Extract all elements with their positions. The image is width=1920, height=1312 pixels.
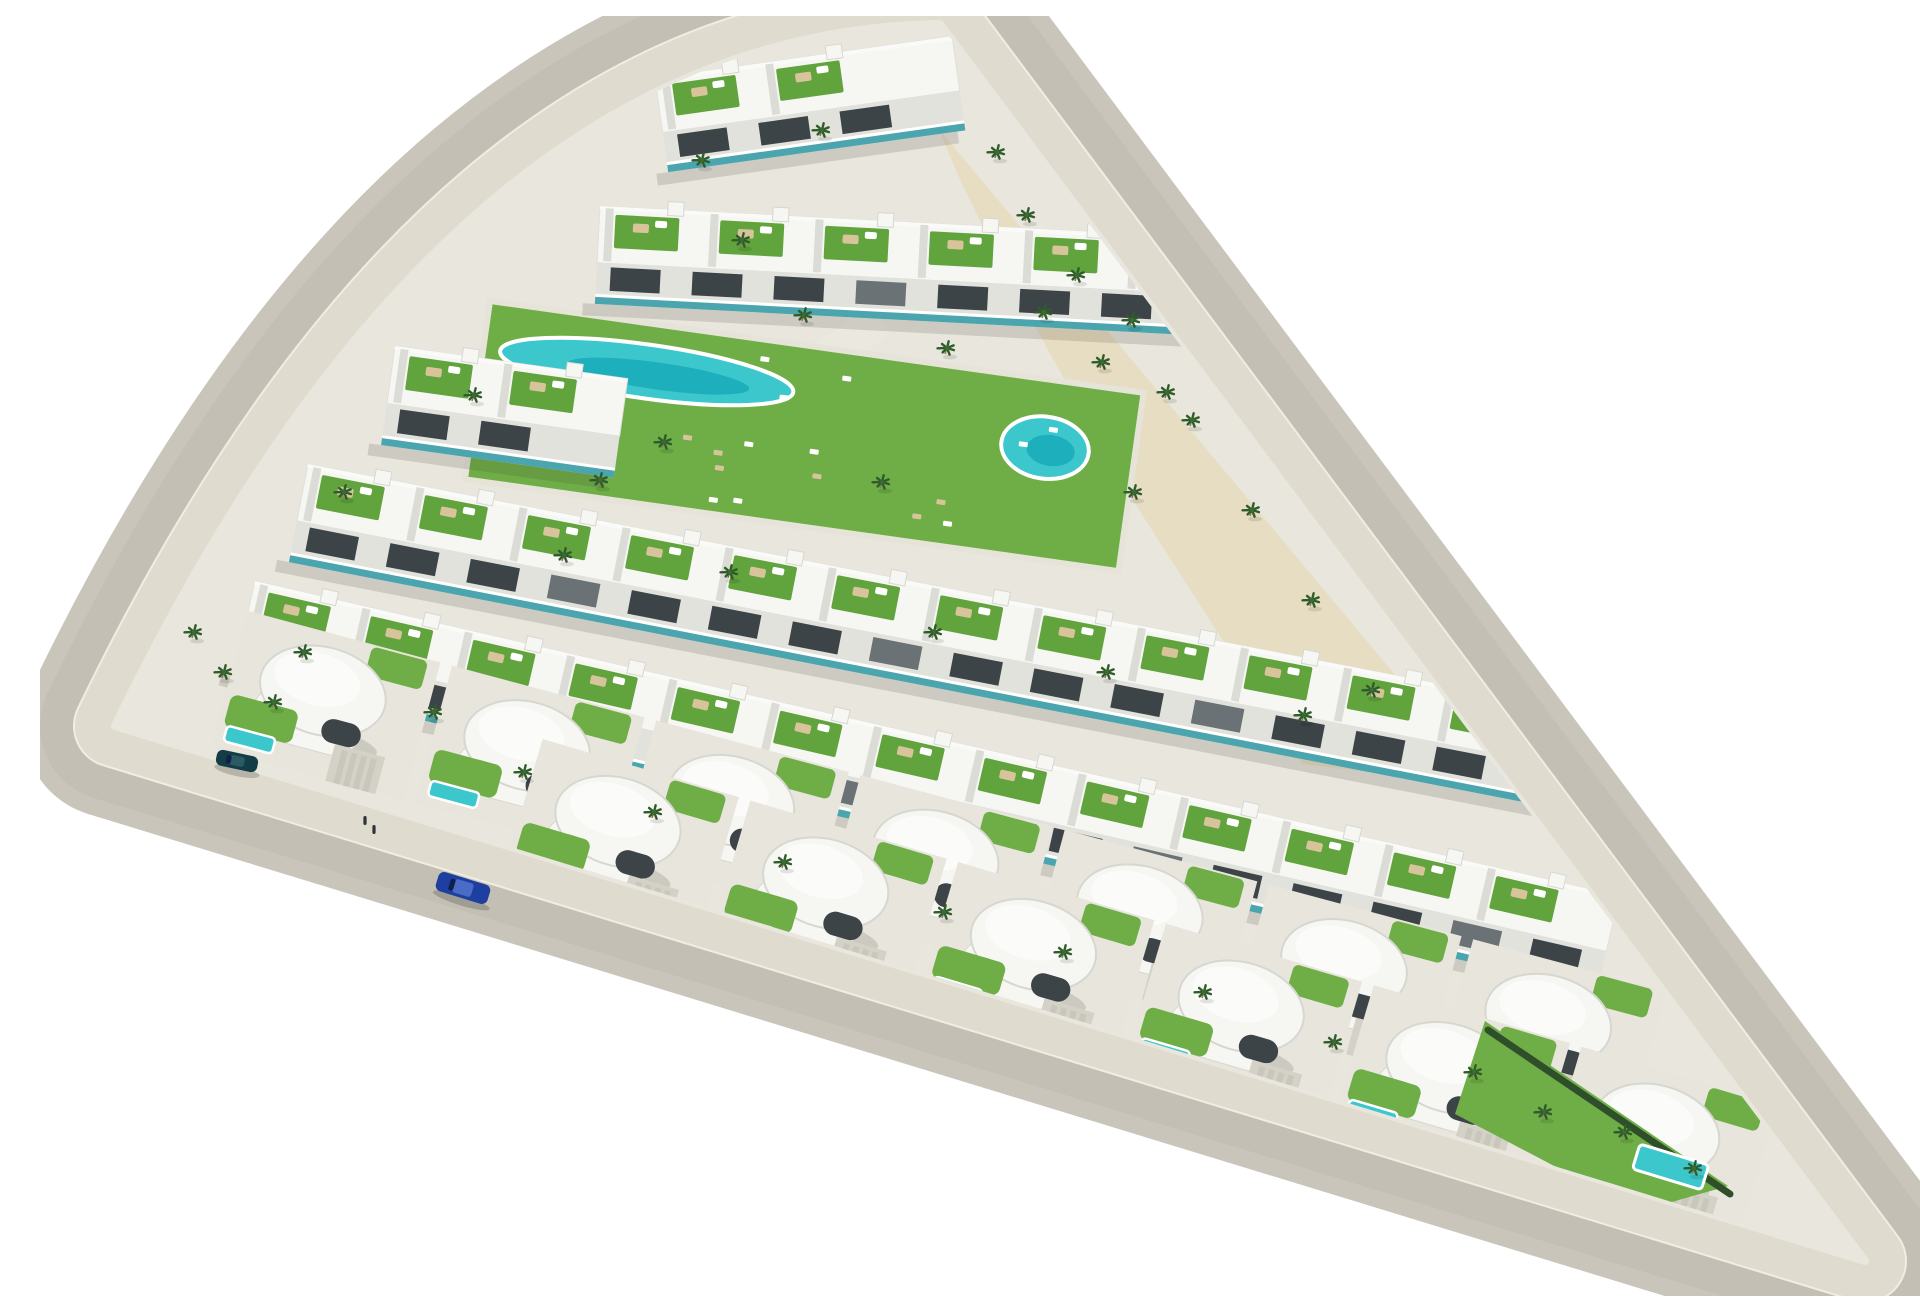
palm-crown bbox=[1622, 1130, 1626, 1134]
stair-bulkhead bbox=[825, 44, 843, 60]
stair-bulkhead bbox=[683, 529, 701, 546]
palm-crown bbox=[432, 710, 436, 714]
palm-crown bbox=[1100, 360, 1104, 364]
palm-crown bbox=[1025, 213, 1029, 217]
palm-crown bbox=[342, 490, 346, 494]
palm-crown bbox=[222, 670, 226, 674]
stair-bulkhead bbox=[580, 509, 598, 526]
stair-bulkhead bbox=[422, 612, 441, 629]
palm-crown bbox=[1190, 418, 1194, 422]
palm-crown bbox=[1202, 990, 1206, 994]
stair-bulkhead bbox=[525, 636, 544, 653]
stair-bulkhead bbox=[772, 207, 789, 222]
palm-crown bbox=[272, 700, 276, 704]
palm-crown bbox=[942, 910, 946, 914]
palm-crown bbox=[1130, 318, 1134, 322]
palm-crown bbox=[1370, 688, 1374, 692]
terrace-sofa bbox=[970, 237, 982, 245]
palm-crown bbox=[782, 860, 786, 864]
palm-crown bbox=[1105, 670, 1109, 674]
palm-crown bbox=[1132, 490, 1136, 494]
palm-crown bbox=[1542, 1110, 1546, 1114]
stair-bulkhead bbox=[877, 213, 894, 228]
palm-crown bbox=[1692, 1166, 1696, 1170]
facade-window bbox=[937, 285, 988, 311]
facade-window bbox=[610, 267, 661, 293]
palm-crown bbox=[1250, 508, 1254, 512]
palm-crown bbox=[662, 440, 666, 444]
stair-bulkhead bbox=[786, 549, 804, 566]
palm-crown bbox=[932, 630, 936, 634]
stair-bulkhead bbox=[982, 218, 999, 233]
terrace-sofa bbox=[760, 226, 772, 234]
pedestrian bbox=[363, 816, 366, 825]
stair-bulkhead bbox=[374, 469, 392, 486]
palm-crown bbox=[472, 393, 476, 397]
terrace-sofa bbox=[655, 221, 667, 229]
palm-crown bbox=[1165, 390, 1169, 394]
palm-crown bbox=[945, 346, 949, 350]
palm-crown bbox=[1310, 598, 1314, 602]
palm-crown bbox=[995, 150, 999, 154]
stair-bulkhead bbox=[565, 362, 583, 378]
palm-crown bbox=[1472, 1070, 1476, 1074]
palm-crown bbox=[728, 570, 732, 574]
stair-bulkhead bbox=[1095, 609, 1113, 626]
palm-crown bbox=[700, 158, 704, 162]
terrace-sofa bbox=[1074, 243, 1086, 251]
stair-bulkhead bbox=[992, 589, 1010, 606]
stair-bulkhead bbox=[1404, 669, 1422, 686]
palm-crown bbox=[562, 553, 566, 557]
stair-bulkhead bbox=[889, 569, 907, 586]
stair-bulkhead bbox=[729, 683, 748, 700]
stair-bulkhead bbox=[1343, 825, 1362, 842]
stair-bulkhead bbox=[477, 489, 495, 506]
stair-bulkhead bbox=[627, 659, 646, 676]
stair-bulkhead bbox=[320, 589, 339, 606]
stair-bulkhead bbox=[1198, 629, 1216, 646]
stair-bulkhead bbox=[831, 707, 850, 724]
terrace-dining-set bbox=[633, 223, 649, 233]
stair-bulkhead bbox=[1138, 777, 1157, 794]
aerial-site-render: Aerial 3D render of a triangular residen… bbox=[40, 16, 1920, 1296]
stair-bulkhead bbox=[1241, 801, 1260, 818]
palm-crown bbox=[1302, 713, 1306, 717]
palm-crown bbox=[1332, 1040, 1336, 1044]
palm-crown bbox=[302, 650, 306, 654]
terrace-sofa bbox=[865, 232, 877, 240]
palm-crown bbox=[820, 128, 824, 132]
pedestrian bbox=[372, 825, 375, 834]
stair-bulkhead bbox=[1301, 649, 1319, 666]
stair-bulkhead bbox=[1036, 754, 1055, 771]
palm-crown bbox=[802, 313, 806, 317]
palm-crown bbox=[598, 478, 602, 482]
palm-crown bbox=[1075, 273, 1079, 277]
palm-crown bbox=[192, 630, 196, 634]
palm-crown bbox=[740, 238, 744, 242]
terrace-dining-set bbox=[947, 240, 963, 250]
stair-bulkhead bbox=[1548, 872, 1567, 889]
stair-bulkhead bbox=[462, 348, 480, 364]
stair-bulkhead bbox=[668, 202, 685, 217]
facade-window bbox=[773, 276, 824, 302]
palm-crown bbox=[1062, 950, 1066, 954]
palm-crown bbox=[652, 810, 656, 814]
palm-crown bbox=[1042, 310, 1046, 314]
facade-window bbox=[691, 272, 742, 298]
terrace-dining-set bbox=[842, 234, 858, 244]
facade-window bbox=[855, 280, 906, 306]
stair-bulkhead bbox=[934, 730, 953, 747]
terrace-dining-set bbox=[1052, 245, 1068, 255]
stair-bulkhead bbox=[1445, 848, 1464, 865]
site-plan-svg bbox=[40, 16, 1920, 1296]
palm-crown bbox=[522, 770, 526, 774]
palm-crown bbox=[880, 480, 884, 484]
